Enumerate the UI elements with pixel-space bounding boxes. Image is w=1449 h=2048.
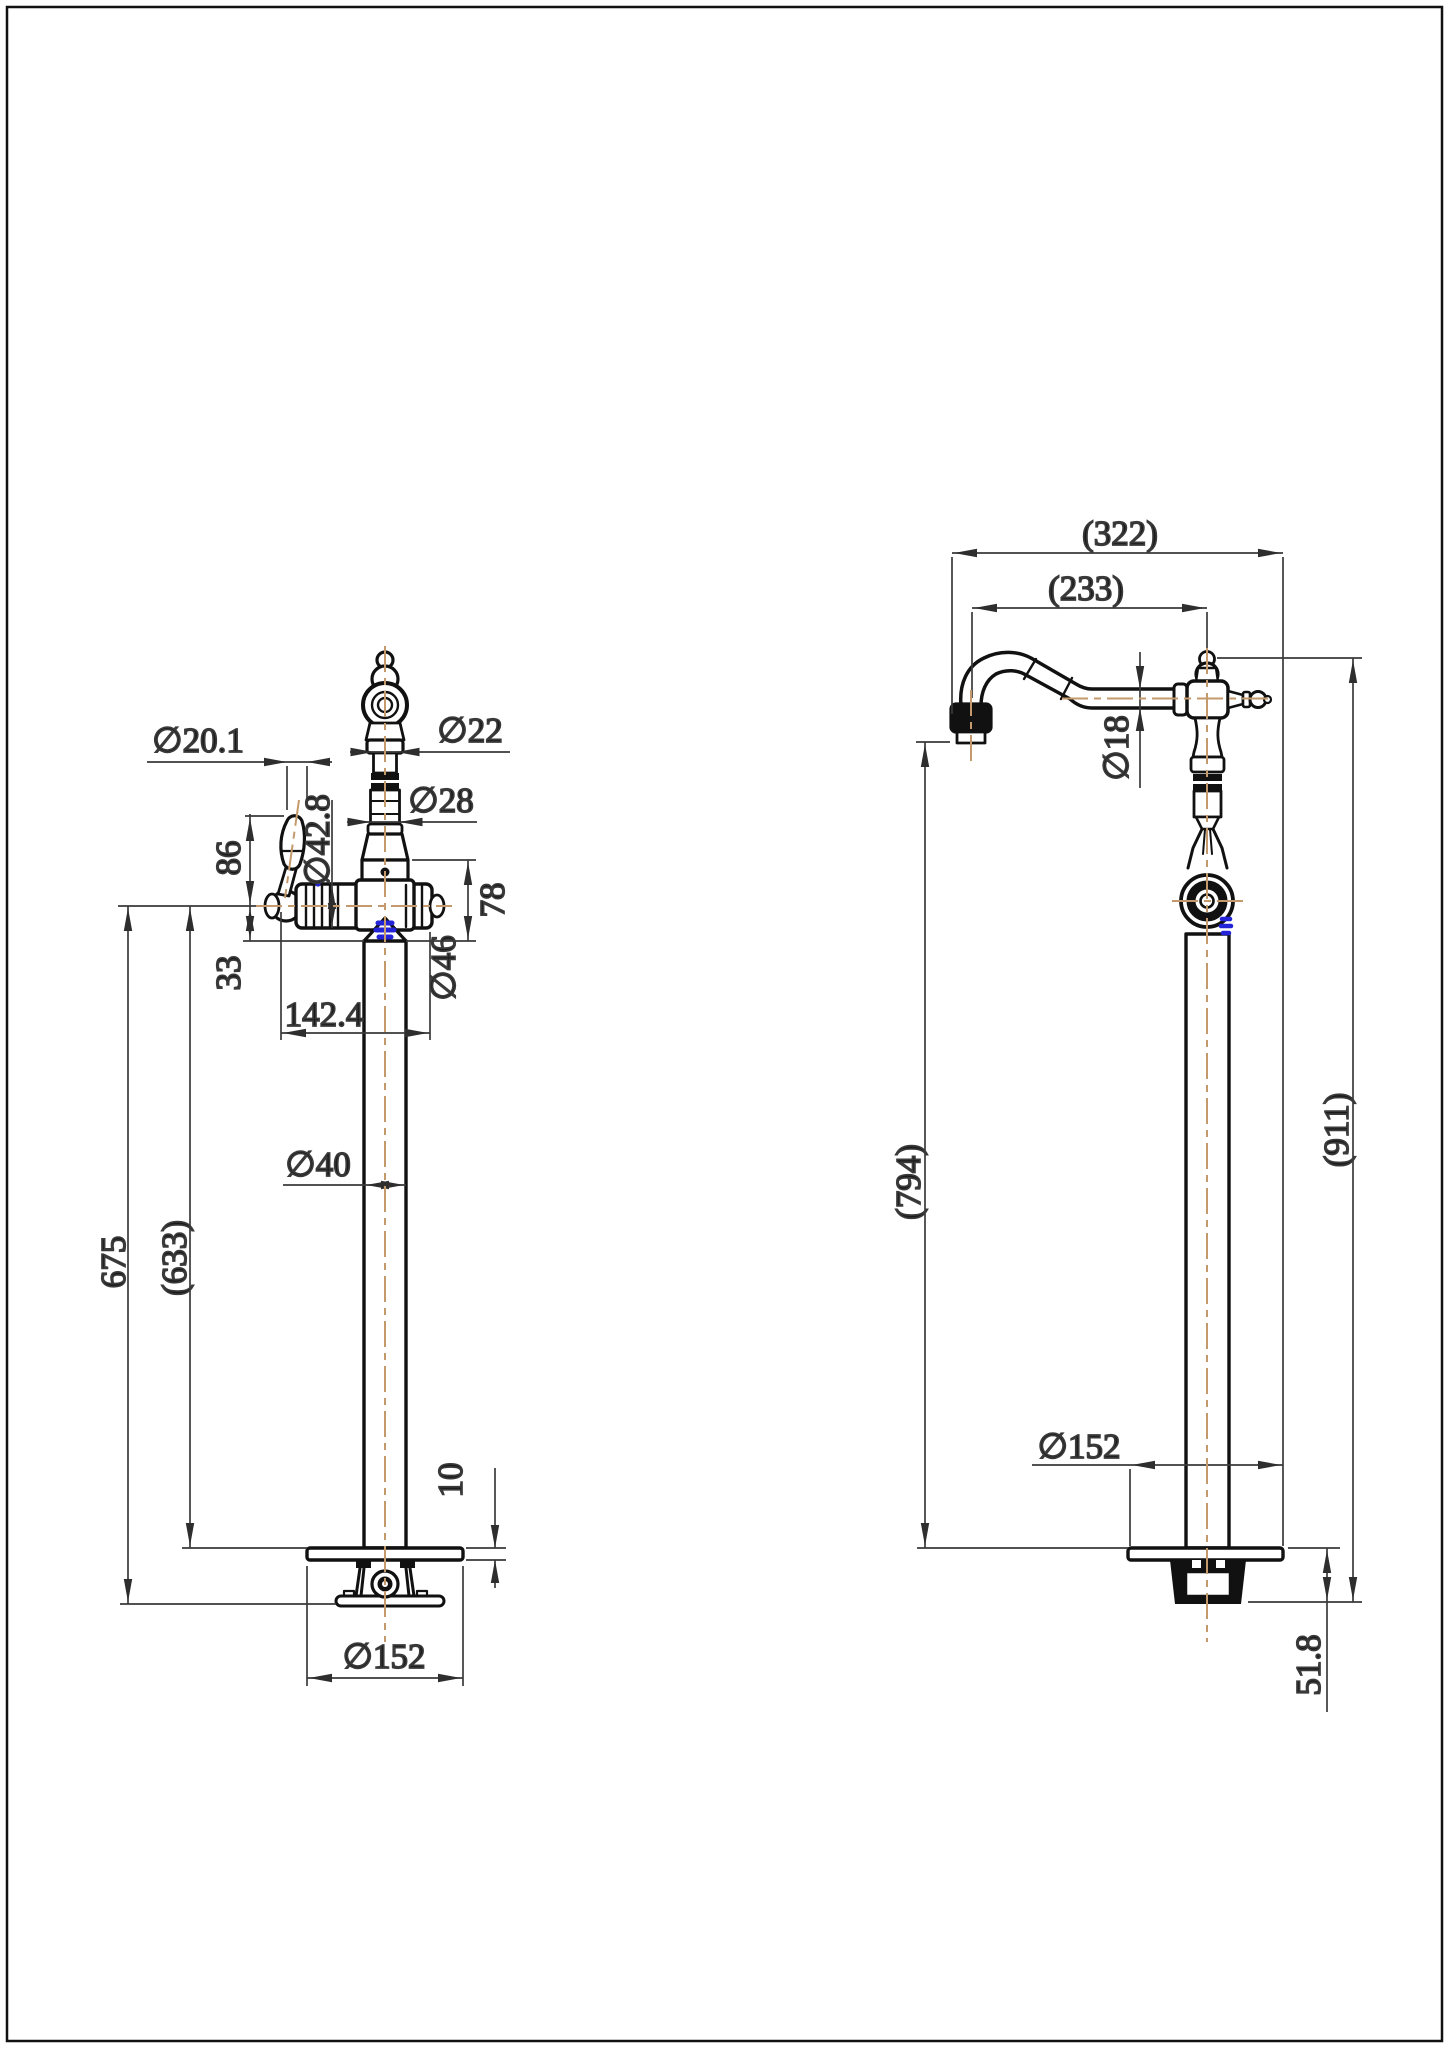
front-view: ∅20.1 ∅22 ∅28 ∅42.8: [94, 652, 512, 1686]
dim-label-end-cap-dia: ∅46: [424, 935, 463, 1001]
dim-label-side-base-dia: ∅152: [1038, 1427, 1121, 1466]
dim-side-height-overall: (911): [1217, 658, 1362, 1602]
dim-front-end-cap-diameter: ∅46: [424, 932, 463, 1040]
dim-front-plate-thickness: 10: [431, 1463, 506, 1589]
dim-side-spout-reach: (233): [972, 569, 1207, 698]
dim-label-handle-height: 86: [209, 841, 248, 876]
dim-label-handle-dia: ∅20.1: [152, 721, 244, 760]
dim-label-plate-thickness: 10: [431, 1463, 470, 1498]
dim-label-below-center: 33: [209, 956, 248, 991]
dim-label-body-dia: ∅42.8: [298, 794, 337, 886]
dim-side-spout-pipe-diameter: ∅18: [1097, 652, 1144, 788]
dim-label-height-to-center: 675: [94, 1236, 133, 1289]
technical-drawing: ∅20.1 ∅22 ∅28 ∅42.8: [0, 0, 1449, 2048]
drawing-sheet: ∅20.1 ∅22 ∅28 ∅42.8: [0, 0, 1449, 2048]
dim-label-height-to-outlet: (794): [889, 1144, 928, 1220]
dim-label-column-dia: ∅40: [285, 1145, 351, 1184]
dim-label-front-base-dia: ∅152: [343, 1637, 426, 1676]
dim-label-base-assembly-height: 51.8: [1289, 1634, 1328, 1695]
dim-label-height-overall: (911): [1317, 1093, 1356, 1168]
dim-front-handle-height: 86: [209, 814, 284, 906]
dim-label-height-to-plate: (633): [155, 1220, 194, 1296]
dim-side-spout-reach-overall: (322): [952, 514, 1283, 1546]
dim-side-base-assembly-height: 51.8: [1288, 1548, 1340, 1712]
dim-label-riser-dia: ∅28: [408, 781, 474, 820]
dim-front-below-center: 33: [209, 906, 254, 991]
side-view: (322) (233) ∅18: [889, 514, 1362, 1712]
dim-label-spout-pipe-dia: ∅18: [1097, 715, 1136, 781]
dim-label-handle-reach: 142.4: [285, 995, 364, 1034]
side-cross-fitting: [1174, 652, 1271, 719]
side-base: [1128, 1548, 1283, 1604]
dim-side-base-diameter: ∅152: [1032, 1427, 1283, 1546]
dim-front-riser-diameter: ∅28: [347, 781, 477, 826]
side-highlight-marks: [1221, 919, 1231, 933]
dim-label-spout-reach-overall: (322): [1082, 514, 1158, 553]
dim-label-spout-top-dia: ∅22: [437, 711, 503, 750]
dim-label-body-section-height: 78: [473, 883, 512, 918]
front-dimensions: ∅20.1 ∅22 ∅28 ∅42.8: [94, 711, 512, 1686]
dim-label-spout-reach: (233): [1048, 569, 1124, 608]
